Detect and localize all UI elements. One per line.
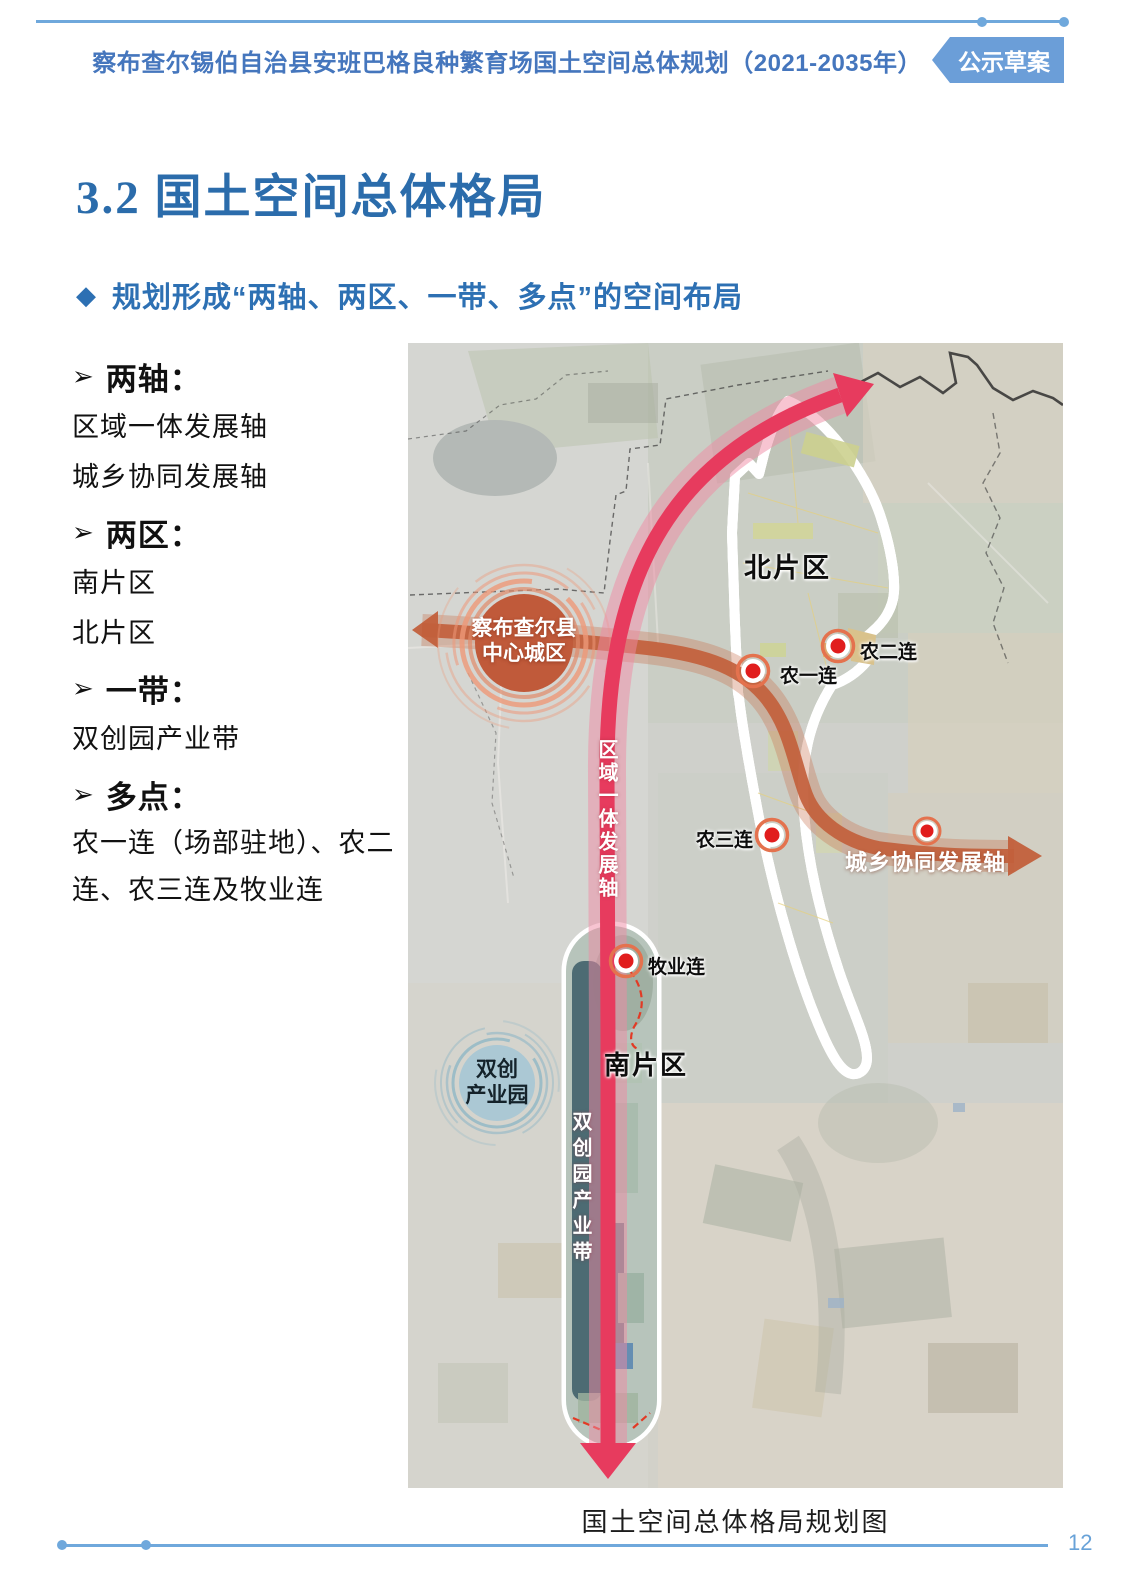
arrow-bullet-icon: ➢ bbox=[72, 363, 94, 389]
industry-park-label-line1: 双创 bbox=[447, 1057, 547, 1083]
group-label: 两区： bbox=[106, 510, 202, 555]
list-group-heading: ➢ 多点： bbox=[72, 768, 424, 820]
section-title: 3.2 国土空间总体格局 bbox=[76, 158, 547, 227]
arrow-bullet-icon: ➢ bbox=[72, 781, 94, 807]
urban-rural-axis-label: 城乡协同发展轴 bbox=[845, 845, 1006, 877]
document-title: 察布查尔锡伯自治县安班巴格良种繁育场国土空间总体规划（2021-2035年） bbox=[92, 43, 922, 78]
node-dot-nong1 bbox=[738, 656, 769, 687]
group-label: 一带： bbox=[106, 666, 202, 711]
industry-park-label-line2: 产业园 bbox=[447, 1083, 547, 1109]
south-zone-label: 南片区 bbox=[604, 1045, 688, 1082]
map-svg bbox=[408, 343, 1063, 1488]
regional-axis-label: 区域一体发展轴 bbox=[592, 739, 621, 900]
planning-map: 北片区 南片区 农一连 农二连 农三连 牧业连 城乡协同发展轴 区域一体发展轴 … bbox=[408, 343, 1063, 1488]
list-group-zones: ➢ 两区： 南片区 北片区 bbox=[72, 506, 424, 658]
node-dot-nong2 bbox=[823, 631, 854, 662]
draft-badge: 公示草案 bbox=[932, 37, 1064, 83]
node-label-nong3: 农三连 bbox=[696, 825, 753, 852]
list-group-heading: ➢ 一带： bbox=[72, 662, 424, 714]
section-subheading: ◆ 规划形成“两轴、两区、一带、多点”的空间布局 bbox=[76, 274, 743, 316]
industry-park-label: 双创 产业园 bbox=[447, 1057, 547, 1109]
node-dot-muye bbox=[611, 946, 642, 977]
header: 察布查尔锡伯自治县安班巴格良种繁育场国土空间总体规划（2021-2035年） 公… bbox=[92, 37, 1064, 83]
subheading-text: 规划形成“两轴、两区、一带、多点”的空间布局 bbox=[112, 274, 743, 316]
footer-line-dot bbox=[57, 1540, 67, 1550]
header-line-dot bbox=[1059, 17, 1069, 27]
industry-belt-label: 双创园产业带 bbox=[566, 1111, 595, 1267]
list-detail: 双创园产业带 bbox=[72, 714, 424, 764]
arrow-bullet-icon: ➢ bbox=[72, 519, 94, 545]
diamond-bullet-icon: ◆ bbox=[76, 282, 96, 308]
county-center-label: 察布查尔县 中心城区 bbox=[463, 616, 585, 666]
list-detail: 区域一体发展轴 bbox=[72, 402, 424, 452]
list-group-points: ➢ 多点： 农一连（场部驻地）、农二连、农三连及牧业连 bbox=[72, 768, 424, 914]
page-number: 12 bbox=[1068, 1530, 1092, 1556]
node-label-nong2: 农二连 bbox=[860, 637, 917, 664]
north-zone-label: 北片区 bbox=[744, 546, 831, 585]
county-center-label-line2: 中心城区 bbox=[463, 641, 585, 666]
group-label: 多点： bbox=[106, 772, 202, 817]
header-divider-line bbox=[36, 20, 1064, 23]
footer-line-dot bbox=[141, 1540, 151, 1550]
key-points-list: ➢ 两轴： 区域一体发展轴 城乡协同发展轴 ➢ 两区： 南片区 北片区 ➢ 一带… bbox=[72, 350, 424, 918]
list-detail: 农一连（场部驻地）、农二连、农三连及牧业连 bbox=[72, 820, 424, 914]
footer-divider-line bbox=[62, 1544, 1048, 1547]
list-group-belt: ➢ 一带： 双创园产业带 bbox=[72, 662, 424, 764]
node-dot-axis bbox=[914, 818, 940, 844]
document-page: 察布查尔锡伯自治县安班巴格良种繁育场国土空间总体规划（2021-2035年） 公… bbox=[0, 0, 1122, 1587]
map-caption: 国土空间总体格局规划图 bbox=[408, 1502, 1063, 1539]
header-line-dot bbox=[977, 17, 987, 27]
node-label-nong1: 农一连 bbox=[780, 661, 837, 688]
list-group-heading: ➢ 两轴： bbox=[72, 350, 424, 402]
county-center-label-line1: 察布查尔县 bbox=[463, 616, 585, 641]
list-group-heading: ➢ 两区： bbox=[72, 506, 424, 558]
list-group-axes: ➢ 两轴： 区域一体发展轴 城乡协同发展轴 bbox=[72, 350, 424, 502]
list-detail: 城乡协同发展轴 bbox=[72, 452, 424, 502]
list-detail: 北片区 bbox=[72, 608, 424, 658]
list-detail: 南片区 bbox=[72, 558, 424, 608]
node-dot-nong3 bbox=[757, 820, 788, 851]
node-label-muye: 牧业连 bbox=[648, 952, 705, 979]
arrow-bullet-icon: ➢ bbox=[72, 675, 94, 701]
group-label: 两轴： bbox=[106, 354, 202, 399]
